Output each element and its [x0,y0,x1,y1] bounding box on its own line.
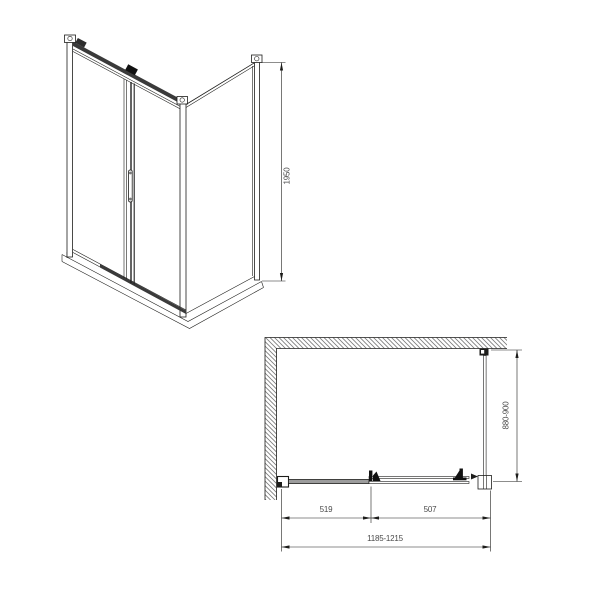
door-handle [129,170,133,202]
height-dimension: 1950 [262,63,292,282]
segment-right-dimension: 507 [371,505,491,520]
wall-hatch-fill [265,338,507,501]
side-glass-plan [484,356,487,477]
roller-block-right [453,469,467,481]
shower-enclosure-drawing: 1950 [0,0,600,600]
front-isometric-view: 1950 [62,35,292,329]
segment-right-label: 507 [424,505,437,514]
front-right-post [180,101,186,317]
total-width-dimension: 1185-1215 [282,534,491,549]
top-rail [73,42,186,107]
corner-cap-top-left [65,35,76,43]
segment-left-dimension: 519 [282,505,372,520]
direction-arrow [471,474,478,480]
roller-block-left [369,471,381,482]
technical-drawing-canvas: 1950 [0,0,600,600]
front-glass-panels [124,79,134,285]
corner-cap-side [252,55,263,63]
depth-dimension-label: 880-900 [502,401,511,430]
segment-left-label: 519 [320,505,333,514]
side-panel [186,55,262,314]
height-dimension-label: 1950 [283,167,292,185]
shower-tray [62,252,264,329]
depth-dimension: 880-900 [491,350,522,482]
bottom-rail-dark [100,264,186,314]
corner-bracket [471,474,492,490]
wall-bracket-left [278,477,289,488]
front-door-frame [65,35,188,317]
side-panel-post [255,60,260,280]
plan-view: 880-900 519 507 1185-1215 [265,338,522,552]
corner-cap-front-right [177,97,188,105]
wall-bracket-top [480,349,489,356]
wall-plan [265,338,507,501]
fixed-panel-track [289,480,370,484]
left-wall-profile [67,41,73,257]
total-width-label: 1185-1215 [367,534,404,543]
